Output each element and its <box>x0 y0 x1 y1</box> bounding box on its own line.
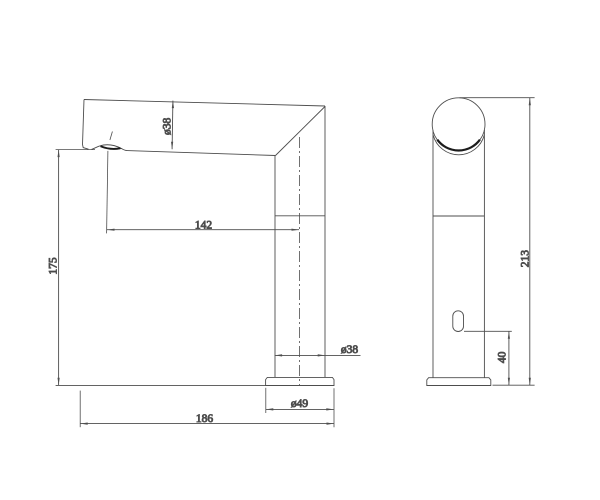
svg-text:40: 40 <box>497 351 509 363</box>
svg-text:213: 213 <box>519 250 531 268</box>
svg-text:142: 142 <box>195 220 213 232</box>
svg-text:ø38: ø38 <box>341 344 359 356</box>
svg-text:ø49: ø49 <box>291 398 309 410</box>
svg-text:175: 175 <box>47 257 59 275</box>
svg-text:ø38: ø38 <box>161 118 173 135</box>
svg-text:186: 186 <box>196 413 214 425</box>
